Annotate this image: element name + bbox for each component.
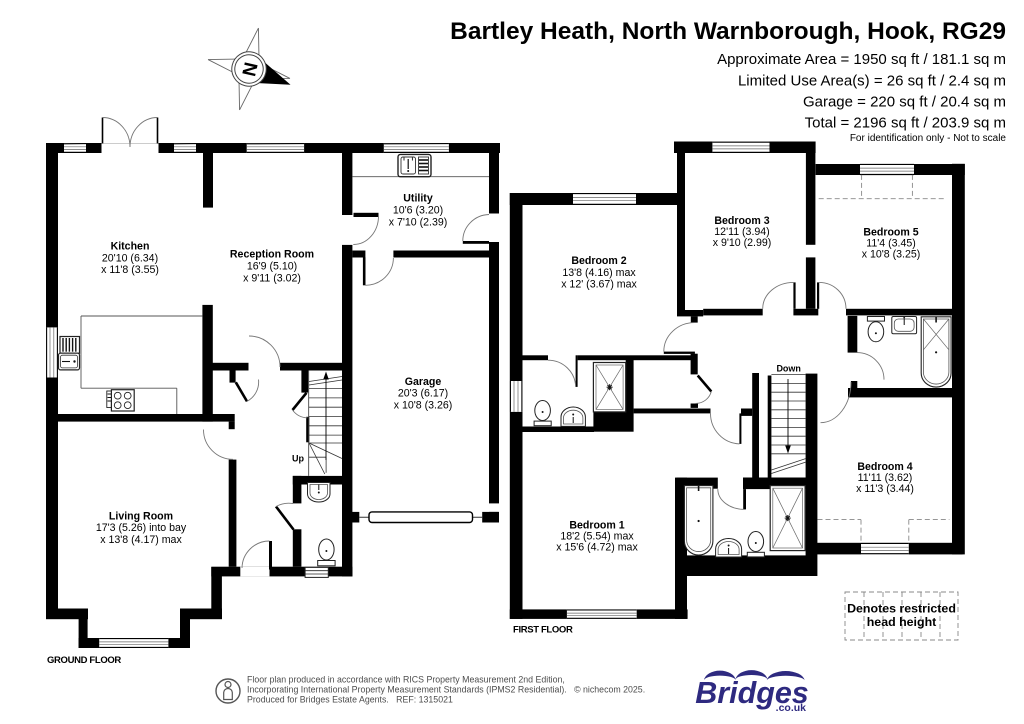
svg-text:Total = 2196 sq ft / 203.9 sq: Total = 2196 sq ft / 203.9 sq m <box>805 115 1006 132</box>
svg-text:Down: Down <box>776 364 801 374</box>
svg-text:x 10'8 (3.26): x 10'8 (3.26) <box>394 399 453 411</box>
svg-text:20'3 (6.17): 20'3 (6.17) <box>398 388 448 400</box>
svg-text:10'6 (3.20): 10'6 (3.20) <box>393 205 443 217</box>
svg-text:Living Room: Living Room <box>109 511 173 523</box>
svg-text:x 11'8 (3.55): x 11'8 (3.55) <box>101 264 159 276</box>
svg-text:Bedroom 2: Bedroom 2 <box>571 255 626 267</box>
svg-text:GROUND FLOOR: GROUND FLOOR <box>47 655 121 666</box>
svg-text:13'8 (4.16) max: 13'8 (4.16) max <box>562 267 636 279</box>
svg-text:head height: head height <box>867 615 937 629</box>
svg-text:Produced for Bridges Estate Ag: Produced for Bridges Estate Agents. REF:… <box>247 695 453 705</box>
svg-text:x 10'8 (3.25): x 10'8 (3.25) <box>862 249 921 261</box>
svg-text:x 11'3 (3.44): x 11'3 (3.44) <box>856 483 914 495</box>
svg-text:x 15'6 (4.72) max: x 15'6 (4.72) max <box>556 542 638 554</box>
svg-text:20'10 (6.34): 20'10 (6.34) <box>102 253 158 265</box>
svg-text:x 12' (3.67) max: x 12' (3.67) max <box>561 279 637 291</box>
svg-text:Approximate Area = 1950 sq ft: Approximate Area = 1950 sq ft / 181.1 sq… <box>717 51 1006 68</box>
svg-text:x 7'10 (2.39): x 7'10 (2.39) <box>389 217 448 229</box>
svg-text:FIRST FLOOR: FIRST FLOOR <box>513 625 573 636</box>
svg-text:x 9'10 (2.99): x 9'10 (2.99) <box>713 237 772 249</box>
svg-text:Kitchen: Kitchen <box>111 241 150 253</box>
svg-text:Floor plan produced in accorda: Floor plan produced in accordance with R… <box>247 675 565 685</box>
svg-text:For identification only - Not: For identification only - Not to scale <box>850 133 1007 144</box>
svg-text:.co.uk: .co.uk <box>776 702 807 714</box>
svg-text:Reception Room: Reception Room <box>230 249 314 261</box>
svg-text:Up: Up <box>292 454 304 464</box>
svg-text:Utility: Utility <box>403 193 433 205</box>
svg-text:Limited Use Area(s) = 26 sq ft: Limited Use Area(s) = 26 sq ft / 2.4 sq … <box>738 73 1006 90</box>
svg-text:x 9'11 (3.02): x 9'11 (3.02) <box>243 273 301 285</box>
svg-text:Denotes restricted: Denotes restricted <box>847 602 956 616</box>
svg-text:Bartley Heath, North Warnborou: Bartley Heath, North Warnborough, Hook, … <box>450 18 1006 45</box>
svg-text:17'3 (5.26) into bay: 17'3 (5.26) into bay <box>96 522 187 534</box>
svg-text:x 13'8 (4.17) max: x 13'8 (4.17) max <box>100 534 182 546</box>
svg-text:Incorporating International Pr: Incorporating International Property Mea… <box>247 685 645 695</box>
svg-text:Garage: Garage <box>405 376 442 388</box>
svg-text:16'9 (5.10): 16'9 (5.10) <box>247 261 297 273</box>
svg-text:Garage = 220 sq ft / 20.4 sq m: Garage = 220 sq ft / 20.4 sq m <box>803 94 1006 111</box>
